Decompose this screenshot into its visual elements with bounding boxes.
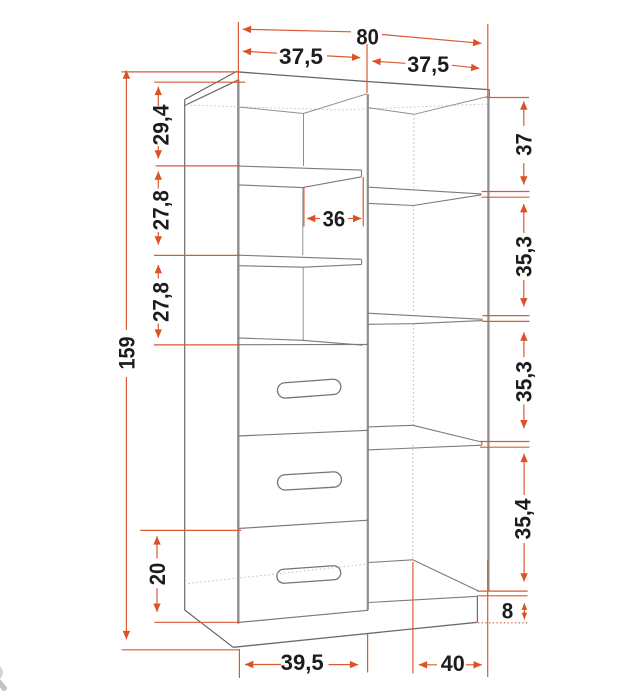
svg-text:8: 8 <box>502 598 514 623</box>
svg-text:159: 159 <box>114 337 139 370</box>
svg-text:39,5: 39,5 <box>281 650 324 675</box>
svg-text:37,5: 37,5 <box>279 44 323 69</box>
svg-text:20: 20 <box>145 563 170 586</box>
svg-text:35,3: 35,3 <box>512 361 537 402</box>
svg-text:27,8: 27,8 <box>148 282 173 322</box>
svg-text:36: 36 <box>323 207 346 232</box>
svg-text:29,4: 29,4 <box>148 104 173 146</box>
svg-text:37: 37 <box>511 133 536 156</box>
svg-text:35,4: 35,4 <box>510 498 535 540</box>
svg-text:40: 40 <box>441 651 465 676</box>
svg-text:37,5: 37,5 <box>407 52 449 77</box>
svg-text:35,3: 35,3 <box>512 236 537 277</box>
svg-text:27,8: 27,8 <box>148 190 173 230</box>
